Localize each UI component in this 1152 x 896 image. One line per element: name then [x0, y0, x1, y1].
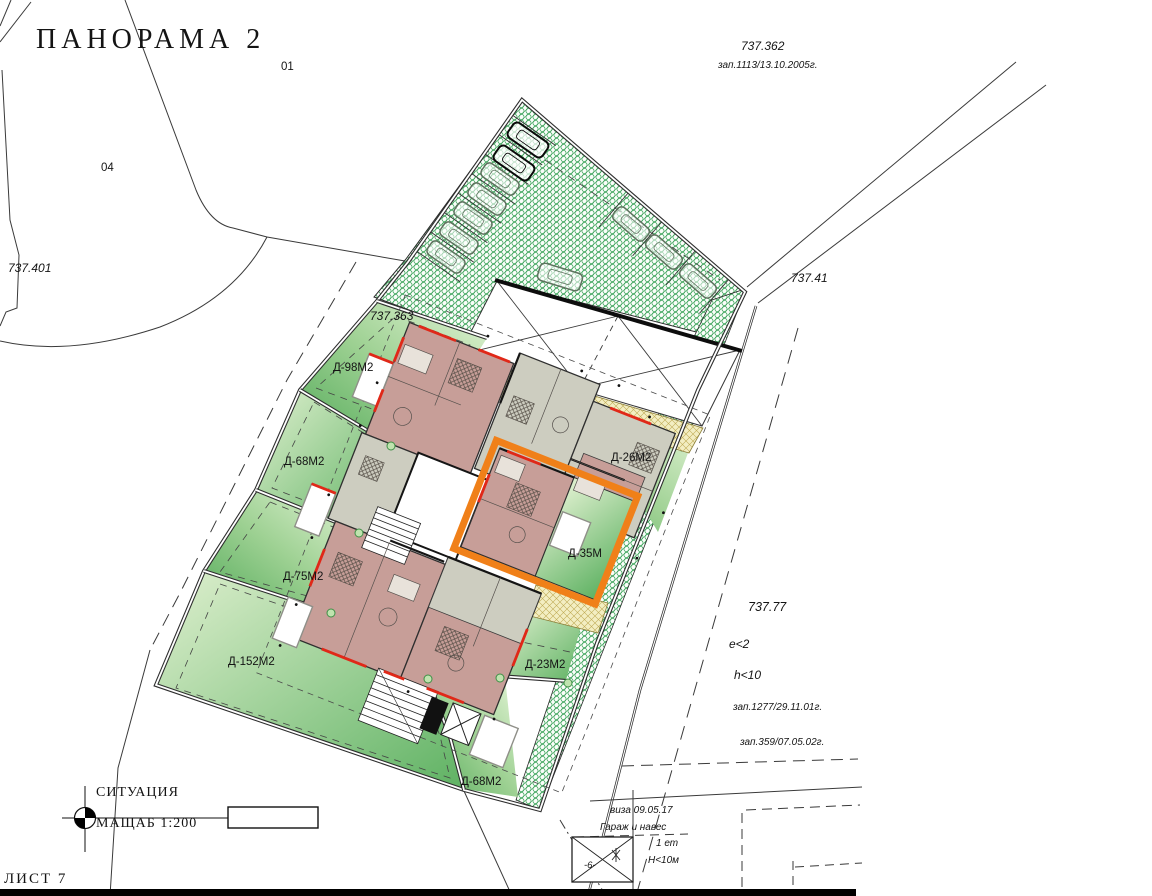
- plot-d152-label: Д-152М2: [228, 657, 275, 669]
- drawing-type-label: СИТУАЦИЯ: [96, 786, 179, 800]
- garage-symbol: [572, 837, 633, 882]
- reg-note-1277: зап.1277/29.11.01г.: [733, 703, 822, 713]
- floors-note: 1 ет: [656, 839, 678, 849]
- parcel-737-401-label: 737.401: [8, 262, 51, 274]
- parcel-01-label: 01: [281, 62, 294, 74]
- drawing-scale-label: МАЩАБ 1:200: [96, 817, 197, 831]
- parcel-737-363-label: 737.363: [370, 310, 413, 322]
- site-plan-drawing: ПАНОРАМА 2 01 04 737.401 737.362 зап.111…: [0, 0, 1152, 896]
- height-limit-label: h<10: [734, 669, 761, 681]
- visa-note: виза 09.05.17: [610, 806, 673, 816]
- garage-mark: -6-: [584, 861, 596, 871]
- density-limit-label: e<2: [729, 638, 749, 650]
- garage-note: Гараж и навес: [600, 823, 666, 833]
- parcel-737-362-label: 737.362: [741, 40, 784, 52]
- plot-d98-label: Д-98М2: [333, 363, 373, 375]
- plot-d68-left-label: Д-68М2: [284, 457, 324, 469]
- sheet-border-bar: [0, 889, 856, 896]
- legend-box: [228, 807, 318, 828]
- site-plan-canvas: [0, 0, 1152, 896]
- parcel-737-77-label: 737.77: [748, 601, 786, 614]
- drawing-title: ПАНОРАМА 2: [36, 26, 265, 54]
- plot-d23-label: Д-23М2: [525, 660, 565, 672]
- plot-d26-label: Д-26М2: [611, 453, 651, 465]
- reg-note-1113: зап.1113/13.10.2005г.: [718, 61, 818, 71]
- plot-d75-label: Д-75М2: [283, 572, 323, 584]
- sheet-number-label: ЛИСТ 7: [4, 872, 67, 887]
- reg-note-359: зап.359/07.05.02г.: [740, 738, 824, 748]
- parcel-04-label: 04: [101, 163, 114, 175]
- plot-d68-bottom-label: Д-68М2: [461, 777, 501, 789]
- plot-d35-label: Д-35М: [568, 549, 602, 561]
- garage-height-note: H<10м: [648, 856, 679, 866]
- parcel-737-41-label: 737.41: [791, 272, 828, 284]
